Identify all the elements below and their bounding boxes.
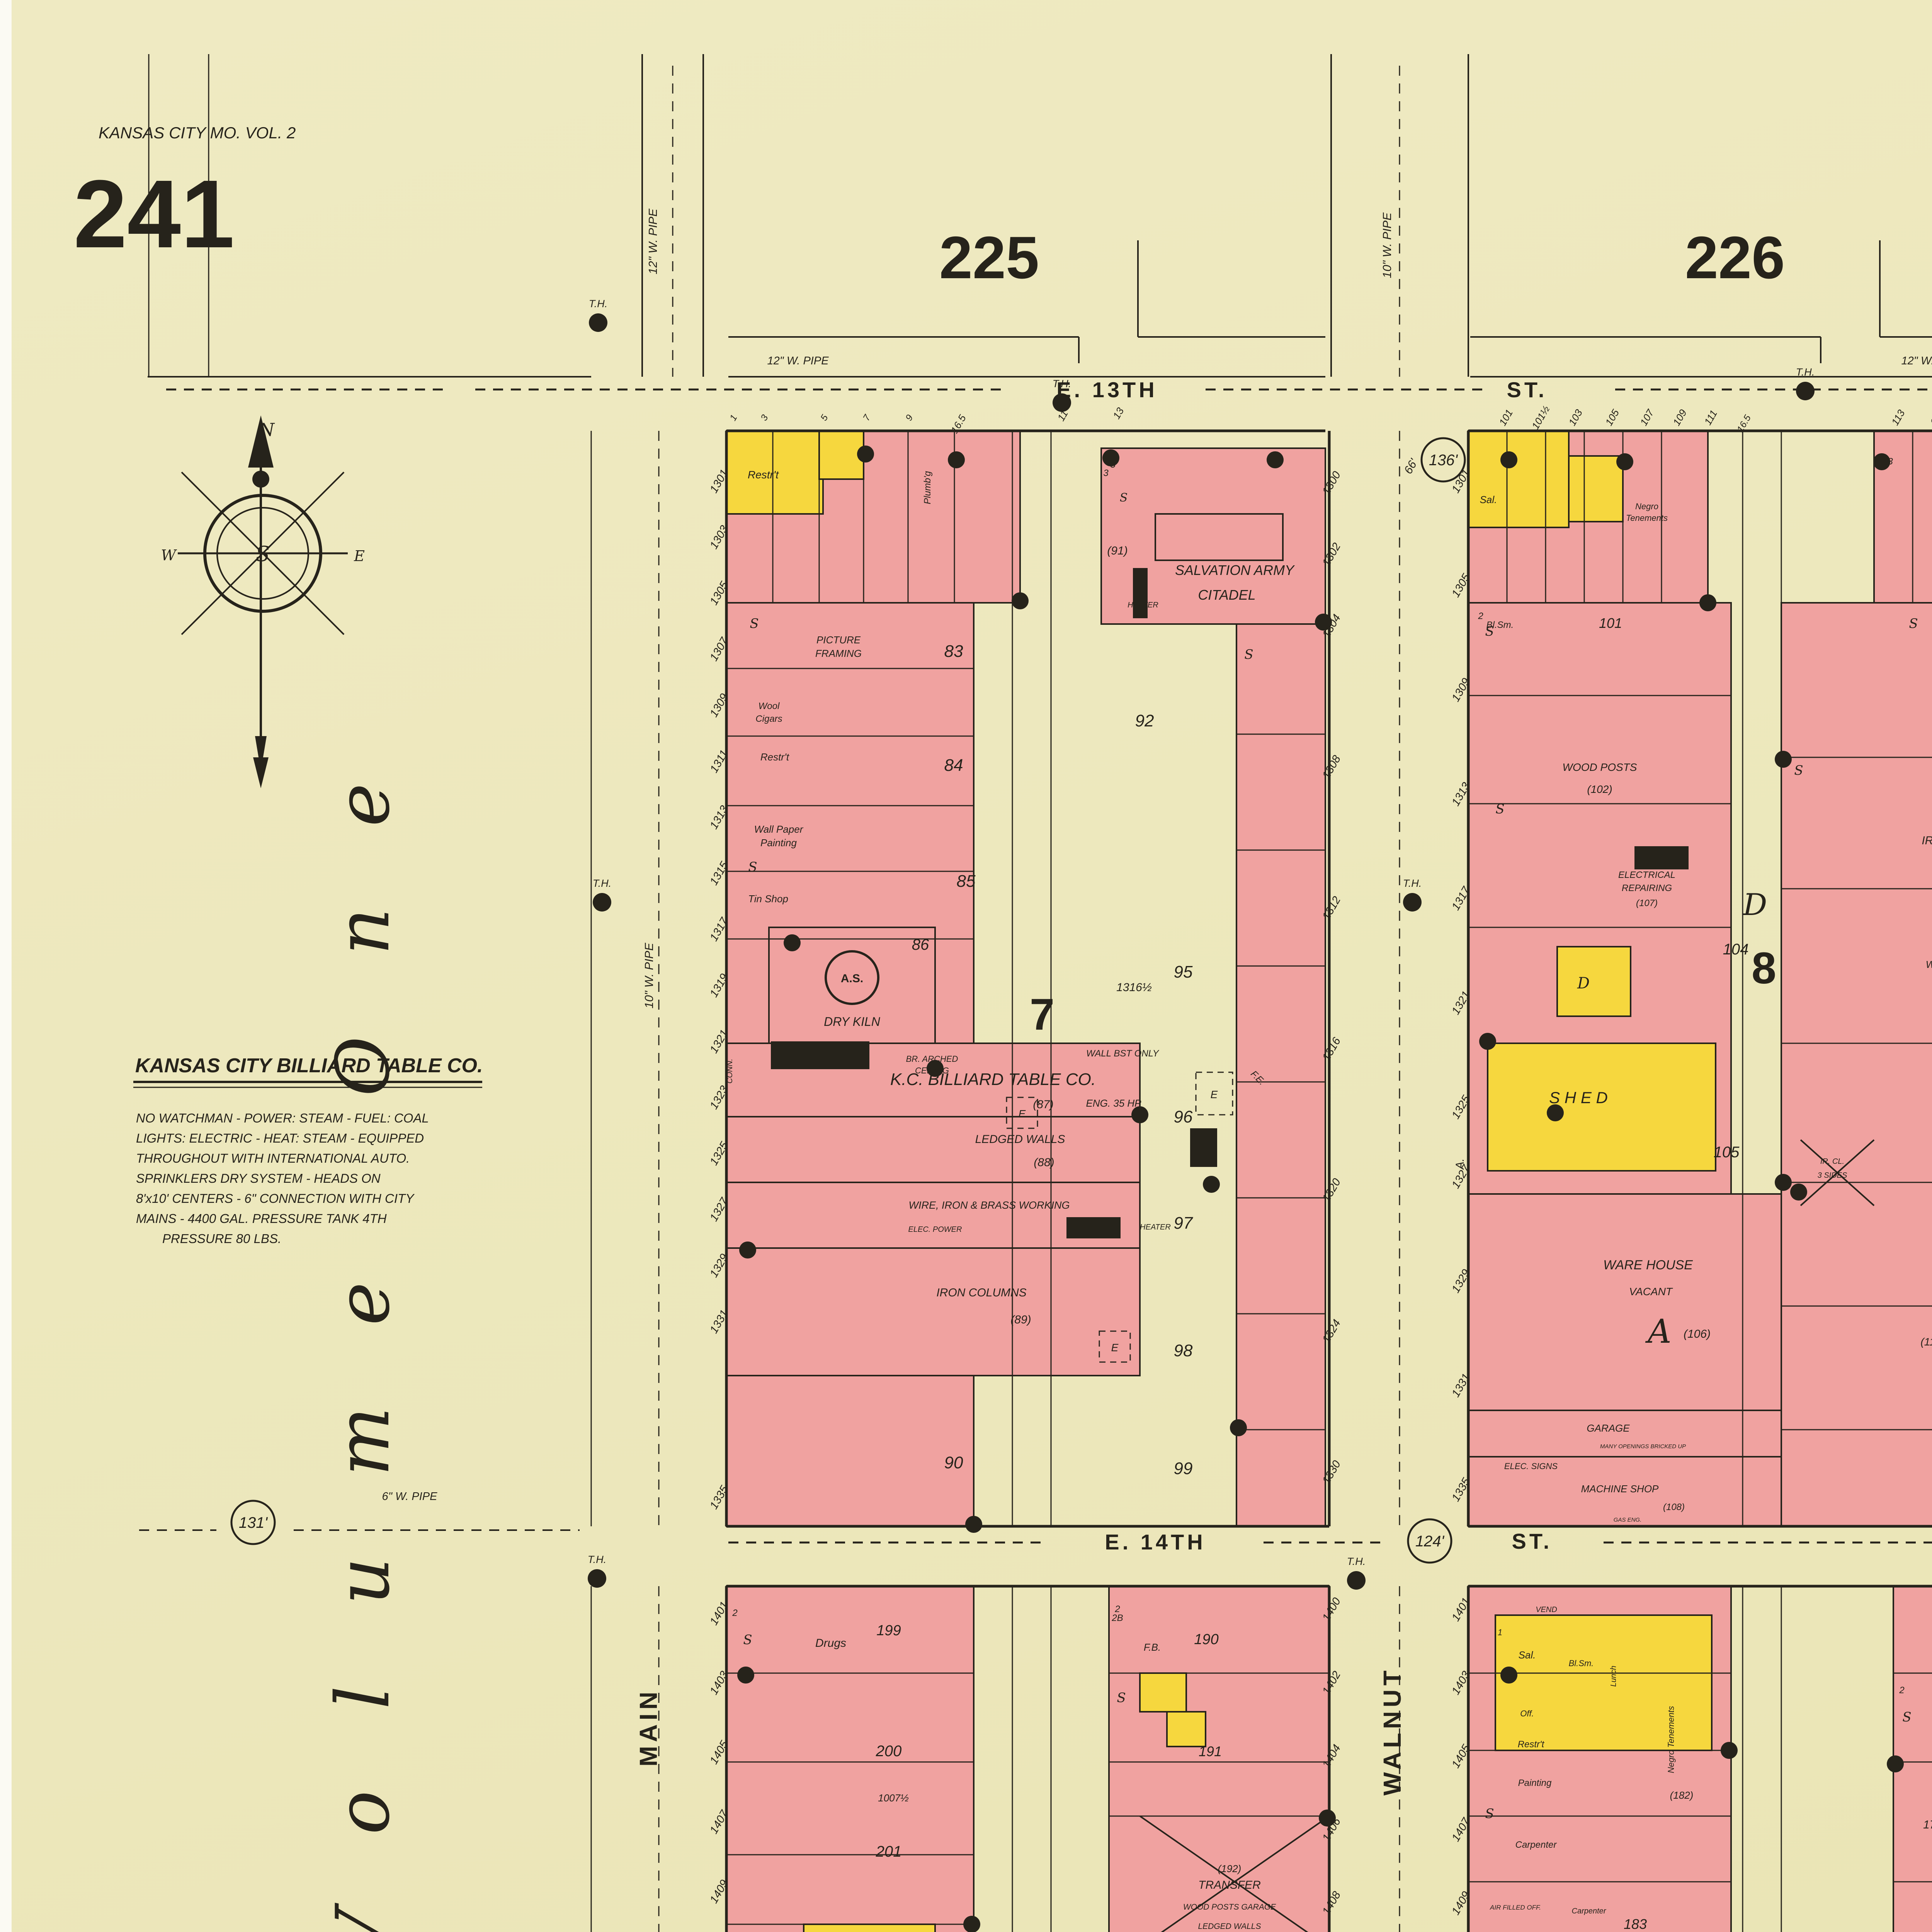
map-label: 85 <box>957 872 976 891</box>
map-label: D <box>1577 975 1590 992</box>
map-dot <box>1775 1174 1792 1191</box>
map-dot <box>1887 1755 1904 1772</box>
map-label: CITADEL <box>1198 587 1255 603</box>
map-label: (87) <box>1033 1098 1053 1111</box>
map-dot <box>1203 1176 1220 1193</box>
street-e13th-st: ST. <box>1507 378 1548 402</box>
map-label: E <box>1019 1108 1026 1120</box>
map-label: 199 <box>876 1622 901 1639</box>
map-label: 2 <box>1114 1604 1120 1614</box>
map-label: ELECTRICAL <box>1618 870 1675 880</box>
page-number: 241 <box>73 160 235 268</box>
map-label: 8 <box>1752 944 1776 993</box>
map-label: FRAMING <box>815 648 862 659</box>
map-label: N <box>259 419 275 440</box>
billiard-note-line: 8'x10' CENTERS - 6" CONNECTION WITH CITY <box>136 1191 415 1206</box>
map-label: 96 <box>1174 1107 1193 1126</box>
map-dot <box>252 471 269 488</box>
map-label: 13 <box>1111 405 1126 421</box>
map-dot <box>948 451 965 468</box>
th-label: T.H. <box>588 1554 607 1565</box>
map-label: S <box>1902 1709 1911 1725</box>
building-rect <box>1133 568 1148 618</box>
th-dot <box>588 1569 606 1588</box>
billiard-note-title: KANSAS CITY BILLIARD TABLE CO. <box>135 1054 483 1077</box>
map-label: Painting <box>1518 1778 1552 1788</box>
map-label: 105 <box>1714 1144 1740 1161</box>
th-label: T.H. <box>1403 878 1422 889</box>
th-label: T.H. <box>1347 1556 1366 1567</box>
map-label: 12" W. PIPE <box>646 209 660 274</box>
map-label: 3 <box>1888 456 1893 467</box>
map-label: 10" W. PIPE <box>642 943 656 1009</box>
building-rect <box>1468 431 1569 527</box>
map-label: S H E D <box>1549 1088 1608 1107</box>
map-dot <box>784 934 801 951</box>
map-label: 92 <box>1135 711 1154 730</box>
billiard-note-line: SPRINKLERS DRY SYSTEM - HEADS ON <box>136 1171 381 1185</box>
map-label: Sal. <box>1519 1649 1536 1661</box>
th-label: T.H. <box>593 878 612 889</box>
map-label: Tenements <box>1626 513 1668 523</box>
compass-arrow <box>253 757 269 788</box>
map-label: (107) <box>1636 898 1658 908</box>
map-label: (192) <box>1218 1863 1242 1874</box>
map-dot <box>1547 1104 1564 1121</box>
map-label: IRON COLUMNS <box>1922 834 1932 847</box>
map-label: 103 <box>1566 407 1585 428</box>
building-rect <box>1569 456 1623 522</box>
map-label: S <box>256 542 270 566</box>
map-label: BR. ARCHED <box>906 1054 958 1064</box>
map-label: REPAIRING <box>1622 883 1672 893</box>
map-label: 95 <box>1174 963 1193 981</box>
map-label: 2 <box>1478 611 1483 621</box>
map-dot <box>1267 451 1284 468</box>
map-dot <box>1479 1033 1496 1050</box>
billiard-note-line: THROUGHOUT WITH INTERNATIONAL AUTO. <box>136 1151 410 1165</box>
map-label: 12" W. PIPE <box>767 355 829 367</box>
map-label: TRANSFER <box>1198 1879 1261 1891</box>
map-label: Carpenter <box>1572 1907 1607 1915</box>
map-label: S <box>1794 763 1803 778</box>
map-label: Negro <box>1635 502 1658 511</box>
map-label: 10" W. PIPE <box>1380 213 1394 278</box>
map-label: 1 <box>728 413 739 423</box>
map-label: (89) <box>1010 1313 1031 1326</box>
map-label: 105 <box>1603 407 1621 428</box>
map-label: Cigars <box>755 714 782 724</box>
map-label: HEATER <box>1128 601 1158 609</box>
map-label: 2B <box>1111 1613 1123 1623</box>
th-dot <box>589 313 607 332</box>
map-label: MACHINE SHOP <box>1581 1483 1659 1495</box>
map-label: 86 <box>912 936 929 953</box>
map-dot <box>1775 751 1792 768</box>
map-label: ENG. 35 HP <box>1086 1097 1141 1109</box>
map-label: S <box>1120 491 1128 505</box>
map-label: Sal. <box>1480 494 1497 505</box>
see-volume-one: See Volume One <box>320 702 406 1932</box>
map-label: LEDGED WALLS <box>1198 1922 1261 1931</box>
map-label: 109 <box>1670 407 1689 428</box>
building-rect <box>726 1117 1140 1182</box>
map-label: 1316½ <box>1116 981 1152 994</box>
building-rect <box>1488 1043 1716 1171</box>
map-label: Wall Paper <box>754 823 804 835</box>
map-label: GARAGE <box>1587 1422 1630 1434</box>
billiard-note-line: MAINS - 4400 GAL. PRESSURE TANK 4TH <box>136 1211 387 1226</box>
map-label: E <box>1211 1088 1218 1100</box>
map-label: 5 <box>818 413 830 423</box>
map-label: (88) <box>1034 1156 1054 1169</box>
building-rect <box>1495 1615 1712 1750</box>
billiard-note-line: LIGHTS: ELECTRIC - HEAT: STEAM - EQUIPPE… <box>136 1131 424 1145</box>
map-label: 7 <box>861 412 873 422</box>
map-label: (108) <box>1663 1502 1685 1512</box>
map-dot <box>1790 1184 1807 1201</box>
map-label: Painting <box>760 837 797 849</box>
volume-line: KANSAS CITY MO. VOL. 2 <box>99 124 296 142</box>
map-label: 7 <box>1030 990 1054 1039</box>
map-label: WIRE, IRON & BRASS WORKING <box>908 1199 1070 1211</box>
map-label: (182) <box>1670 1789 1694 1801</box>
map-label: IR. CL. <box>1820 1157 1844 1166</box>
map-label: 97 <box>1174 1214 1193 1233</box>
building-rect <box>726 1376 974 1526</box>
map-dot <box>1500 451 1517 468</box>
billiard-note-line: PRESSURE 80 LBS. <box>162 1231 281 1246</box>
street-width-label: 136' <box>1429 452 1458 469</box>
map-label: Tin Shop <box>748 893 788 905</box>
billiard-note-line: NO WATCHMAN - POWER: STEAM - FUEL: COAL <box>136 1111 429 1125</box>
street-main: MAIN <box>634 1688 662 1767</box>
building-rect <box>1066 1217 1121 1238</box>
map-label: (116) <box>1920 1336 1932 1348</box>
building-rect <box>1557 947 1631 1016</box>
map-label: 66' <box>1402 456 1421 476</box>
building-rect <box>0 0 12 1932</box>
map-label: 2 <box>1899 1685 1904 1696</box>
map-label: 3 <box>1103 468 1109 478</box>
th-label: T.H. <box>1796 366 1815 378</box>
map-label: ELEC. POWER <box>908 1225 962 1234</box>
map-label: 111 <box>1702 408 1719 427</box>
map-label: 101 <box>1599 615 1622 631</box>
map-label: (91) <box>1107 544 1128 557</box>
th-dot <box>1347 1571 1366 1590</box>
map-label: VEND <box>1536 1605 1557 1614</box>
th-dot <box>1403 893 1422 912</box>
th-label: T.H. <box>589 298 608 310</box>
map-label: IRON COLUMNS <box>936 1286 1026 1299</box>
map-label: Lunch <box>1609 1666 1618 1687</box>
map-dot <box>857 446 874 463</box>
map-label: 12" W. PIPE <box>1901 355 1932 367</box>
map-label: S <box>1909 616 1918 631</box>
map-label: WOOD POSTS GARAGE <box>1183 1903 1276 1912</box>
map-label: E <box>354 548 365 565</box>
map-canvas: 136'131'124'137'114'125'122'T.H.T.H.T.H.… <box>0 0 1932 1932</box>
map-label: LEDGED WALLS <box>975 1133 1065 1146</box>
map-dot <box>737 1667 754 1684</box>
map-dot <box>1230 1419 1247 1436</box>
building-rect <box>726 1248 1140 1376</box>
adjacent-block-225: 225 <box>939 224 1039 291</box>
map-label: Drugs <box>815 1637 846 1650</box>
map-label: VACANT <box>1629 1286 1673 1298</box>
map-label: AIR FILLED OFF. <box>1490 1904 1541 1911</box>
th-dot <box>593 893 611 912</box>
map-label: 173 <box>1923 1818 1932 1831</box>
map-label: 101 <box>1497 407 1515 428</box>
map-label: 183 <box>1624 1916 1647 1932</box>
map-label: S <box>743 1632 752 1648</box>
map-label: (106) <box>1684 1328 1711 1340</box>
map-label: (102) <box>1587 783 1612 795</box>
street-walnut: WALNUT <box>1378 1667 1406 1796</box>
map-label: S <box>1485 1806 1494 1821</box>
map-label: 101½ <box>1529 404 1552 431</box>
map-label: 113 <box>1889 408 1907 427</box>
map-label: 104 <box>1723 941 1749 958</box>
map-label: WARE HOUSE <box>1603 1258 1693 1272</box>
map-label: Off. <box>1520 1709 1534 1718</box>
map-label: 2 <box>732 1608 737 1618</box>
map-label: Wool <box>759 701 780 711</box>
map-dot <box>965 1516 982 1533</box>
building-rect <box>726 1586 974 1932</box>
street-e14th: E. 14TH <box>1105 1530 1206 1554</box>
map-dot <box>963 1916 980 1932</box>
map-label: S <box>748 859 757 875</box>
map-dot <box>1500 1667 1517 1684</box>
map-label: 83 <box>944 642 963 661</box>
map-label: S <box>1117 1690 1126 1706</box>
map-label: WOOD POSTS 1&2 <box>1926 959 1932 970</box>
map-label: Bl.Sm. <box>1569 1658 1594 1668</box>
th-dot <box>1796 382 1815 400</box>
building-rect <box>771 1041 869 1069</box>
map-label: 98 <box>1174 1341 1193 1360</box>
map-label: PICTURE <box>816 634 861 646</box>
building-rect <box>819 431 864 479</box>
map-label: 191 <box>1199 1743 1222 1759</box>
map-label: Carpenter <box>1515 1840 1557 1850</box>
map-label: Negro Tenements <box>1666 1706 1676 1773</box>
billiard-note: KANSAS CITY BILLIARD TABLE CO. NO WATCHM… <box>135 1054 483 1246</box>
street-e14th-st: ST. <box>1512 1529 1553 1553</box>
map-label: Bl.Sm. <box>1486 620 1514 630</box>
map-label: E <box>1111 1342 1119 1354</box>
map-label: Restr't <box>760 751 790 763</box>
map-label: 3 SIDES <box>1818 1171 1847 1180</box>
street-e13th: E. 13TH <box>1056 378 1157 402</box>
building-rect <box>1781 603 1932 1526</box>
map-label: S <box>1495 801 1504 817</box>
map-label: DRY KILN <box>824 1015 881 1029</box>
map-label: 84 <box>944 756 963 775</box>
map-label: 3 <box>1110 458 1116 470</box>
map-label: 1007½ <box>878 1792 909 1804</box>
building-rect <box>1190 1128 1217 1167</box>
map-label: 190 <box>1194 1631 1218 1648</box>
map-label: A <box>1645 1313 1671 1351</box>
map-dot <box>1721 1742 1738 1759</box>
map-label: 201 <box>876 1843 902 1860</box>
map-label: W <box>161 547 177 564</box>
map-label: WALL BST ONLY <box>1086 1048 1160 1059</box>
map-label: ELEC. SIGNS <box>1504 1461 1558 1471</box>
map-label: GAS ENG. <box>1614 1517 1642 1523</box>
map-label: 200 <box>876 1743 902 1760</box>
building-rect <box>1468 1194 1781 1410</box>
map-label: K.C. BILLIARD TABLE CO. <box>890 1070 1096 1089</box>
sanborn-map-sheet: 136'131'124'137'114'125'122'T.H.T.H.T.H.… <box>0 0 1932 1932</box>
map-label: 107 <box>1638 407 1656 428</box>
map-label: MANY OPENINGS BRICKED UP <box>1600 1443 1686 1450</box>
map-label: 9 <box>903 413 915 423</box>
street-width-label: 131' <box>239 1514 268 1531</box>
map-label: SALVATION ARMY <box>1175 562 1295 578</box>
building-rect <box>804 1924 935 1932</box>
map-dot <box>739 1242 756 1259</box>
map-label: 1 <box>1498 1628 1502 1637</box>
map-dot <box>1012 592 1029 609</box>
map-label: Restr't <box>748 469 779 481</box>
adjacent-block-226: 226 <box>1685 224 1785 291</box>
map-label: WOOD POSTS <box>1563 761 1637 773</box>
map-label: A.S. <box>841 972 863 985</box>
building-rect <box>1167 1712 1206 1747</box>
map-label: CONN. <box>726 1059 734 1083</box>
map-label: 99 <box>1174 1459 1193 1478</box>
map-label: 115 <box>1928 408 1932 427</box>
map-label: Plumb'g <box>922 471 933 504</box>
map-label: HEATER <box>1140 1223 1171 1231</box>
building-rect <box>1140 1673 1186 1712</box>
map-dot <box>1616 453 1633 470</box>
map-label: Restr't <box>1518 1739 1545 1750</box>
map-label: 90 <box>944 1453 963 1472</box>
map-label: F.B. <box>1144 1641 1161 1653</box>
map-dot <box>1699 594 1716 611</box>
map-label: D <box>1742 888 1767 922</box>
building-rect <box>1634 846 1689 869</box>
map-label: S <box>1244 647 1253 662</box>
map-label: S <box>750 616 759 631</box>
street-width-label: 124' <box>1415 1533 1445 1550</box>
map-label: 3 <box>759 413 770 423</box>
